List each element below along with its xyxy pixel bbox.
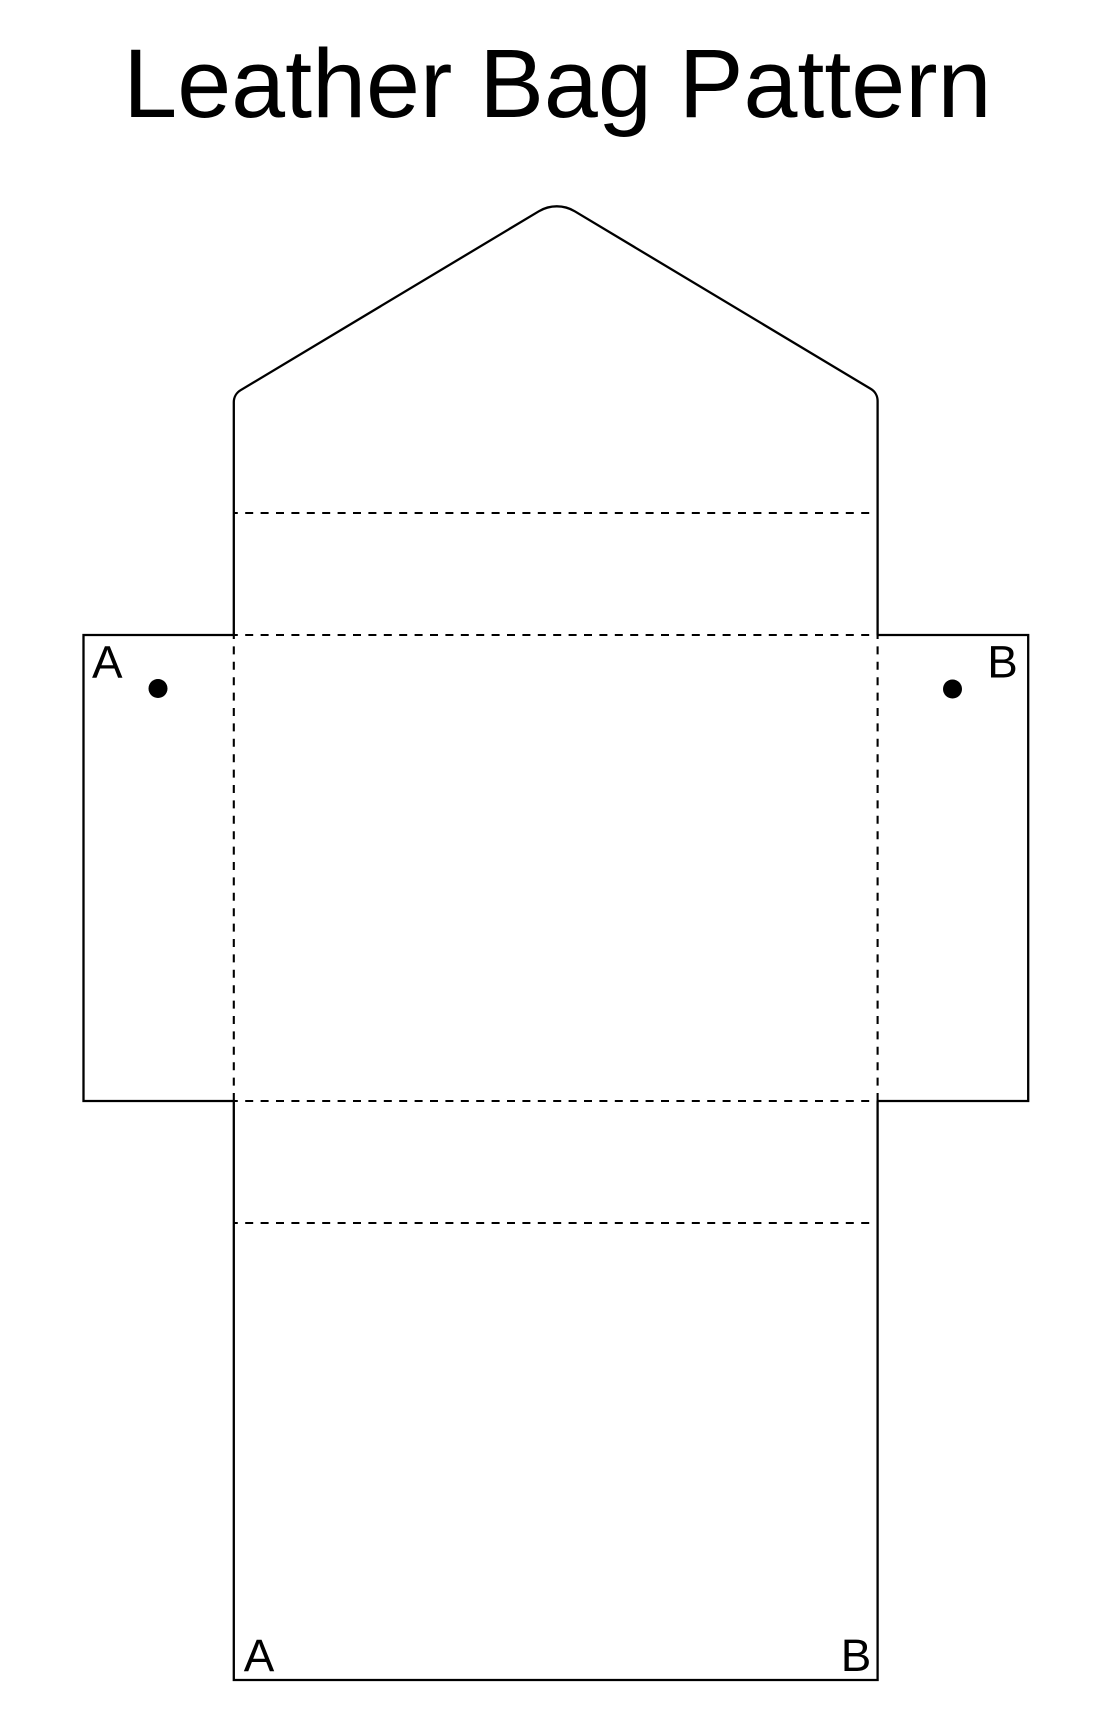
svg-text:B: B bbox=[987, 636, 1018, 687]
svg-text:A: A bbox=[244, 1630, 275, 1681]
svg-text:A: A bbox=[92, 636, 123, 687]
svg-text:Leather Bag Pattern: Leather Bag Pattern bbox=[123, 29, 991, 138]
svg-text:B: B bbox=[841, 1630, 872, 1681]
